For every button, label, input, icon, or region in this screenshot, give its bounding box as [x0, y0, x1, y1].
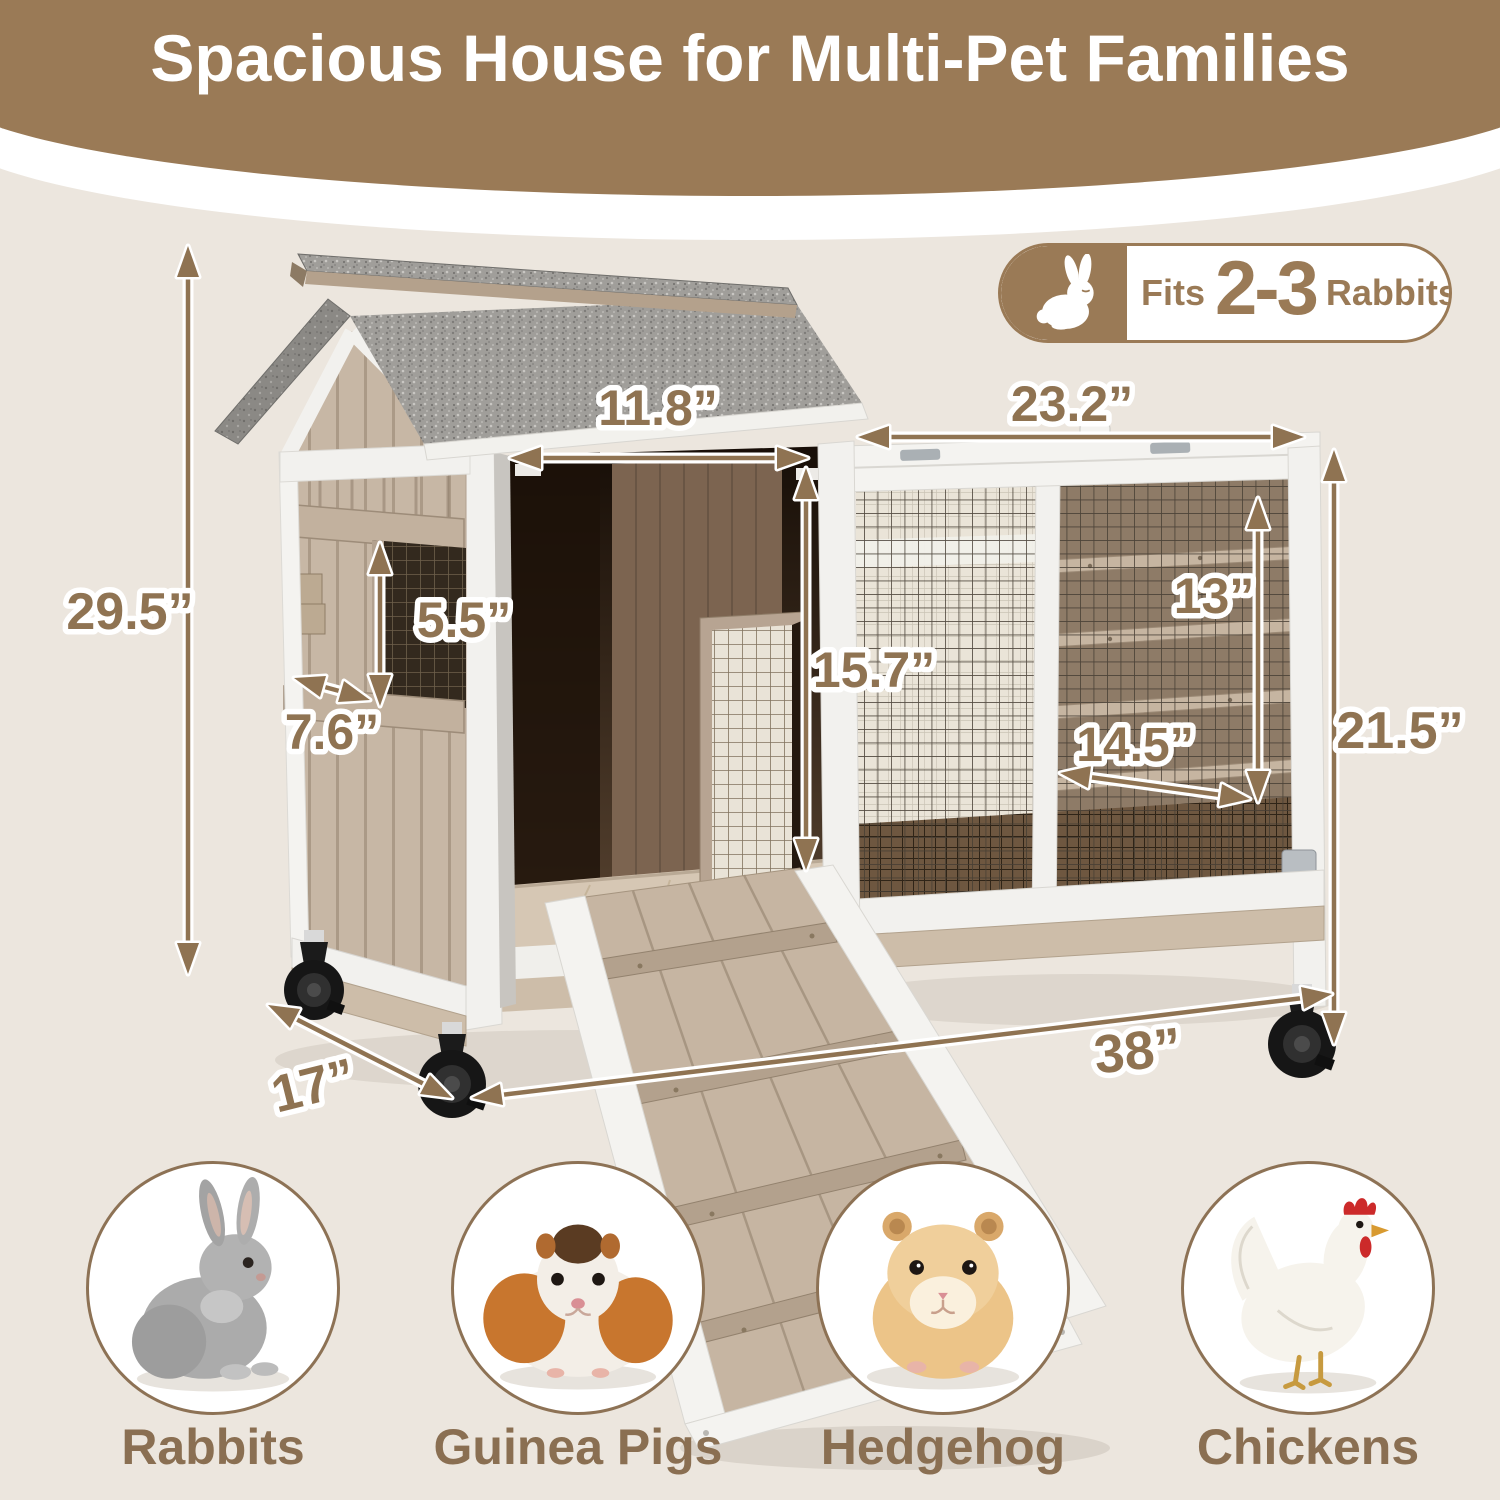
dim-label-door-height: 15.7” [813, 642, 935, 698]
chicken-photo-icon [1184, 1164, 1432, 1412]
dim-label-overall-width: 38” [1091, 1017, 1184, 1086]
run-lid-hinge [1150, 442, 1190, 454]
pet-label-chickens: Chickens [1148, 1416, 1468, 1478]
pet-photo-guinea-pigs [451, 1161, 705, 1415]
run-middle-post [1032, 474, 1060, 934]
pet-label-rabbits: Rabbits [53, 1416, 373, 1478]
dim-label-run-top-width: 23.2” [1011, 376, 1133, 432]
dim-label-run-inner-width: 14.5” [1076, 719, 1193, 772]
dim-label-window-width: 7.6” [285, 704, 380, 760]
badge-count: 2-3 [1215, 251, 1316, 327]
dim-label-overall-height: 29.5” [66, 583, 193, 641]
pet-photo-hedgehog [816, 1161, 1070, 1415]
pet-label-hedgehog: Hedgehog [783, 1416, 1103, 1478]
inner-mesh-door [700, 612, 804, 900]
dim-label-run-height: 21.5” [1336, 702, 1463, 760]
dim-label-run-inner-height: 13” [1174, 568, 1255, 624]
pet-photo-rabbits [86, 1161, 340, 1415]
badge-cap [1001, 246, 1127, 340]
run-lid-hinge [900, 449, 940, 461]
rabbit-icon [1025, 254, 1103, 332]
pet-photo-chickens [1181, 1161, 1435, 1415]
rabbit-photo-icon [89, 1164, 337, 1412]
dim-label-window-height: 5.5” [417, 592, 512, 648]
guinea-pig-photo-icon [454, 1164, 702, 1412]
badge-animal-label: Rabbits [1326, 272, 1452, 314]
capacity-badge: Fits 2-3 Rabbits [998, 243, 1452, 343]
pet-label-guinea-pigs: Guinea Pigs [418, 1416, 738, 1478]
hamster-photo-icon [819, 1164, 1067, 1412]
badge-fits-label: Fits [1141, 272, 1205, 314]
badge-text: Fits 2-3 Rabbits [1141, 259, 1452, 327]
product-infographic: Spacious House for Multi-Pet Families Fi… [0, 0, 1500, 1500]
dim-label-door-width: 11.8” [598, 380, 718, 436]
